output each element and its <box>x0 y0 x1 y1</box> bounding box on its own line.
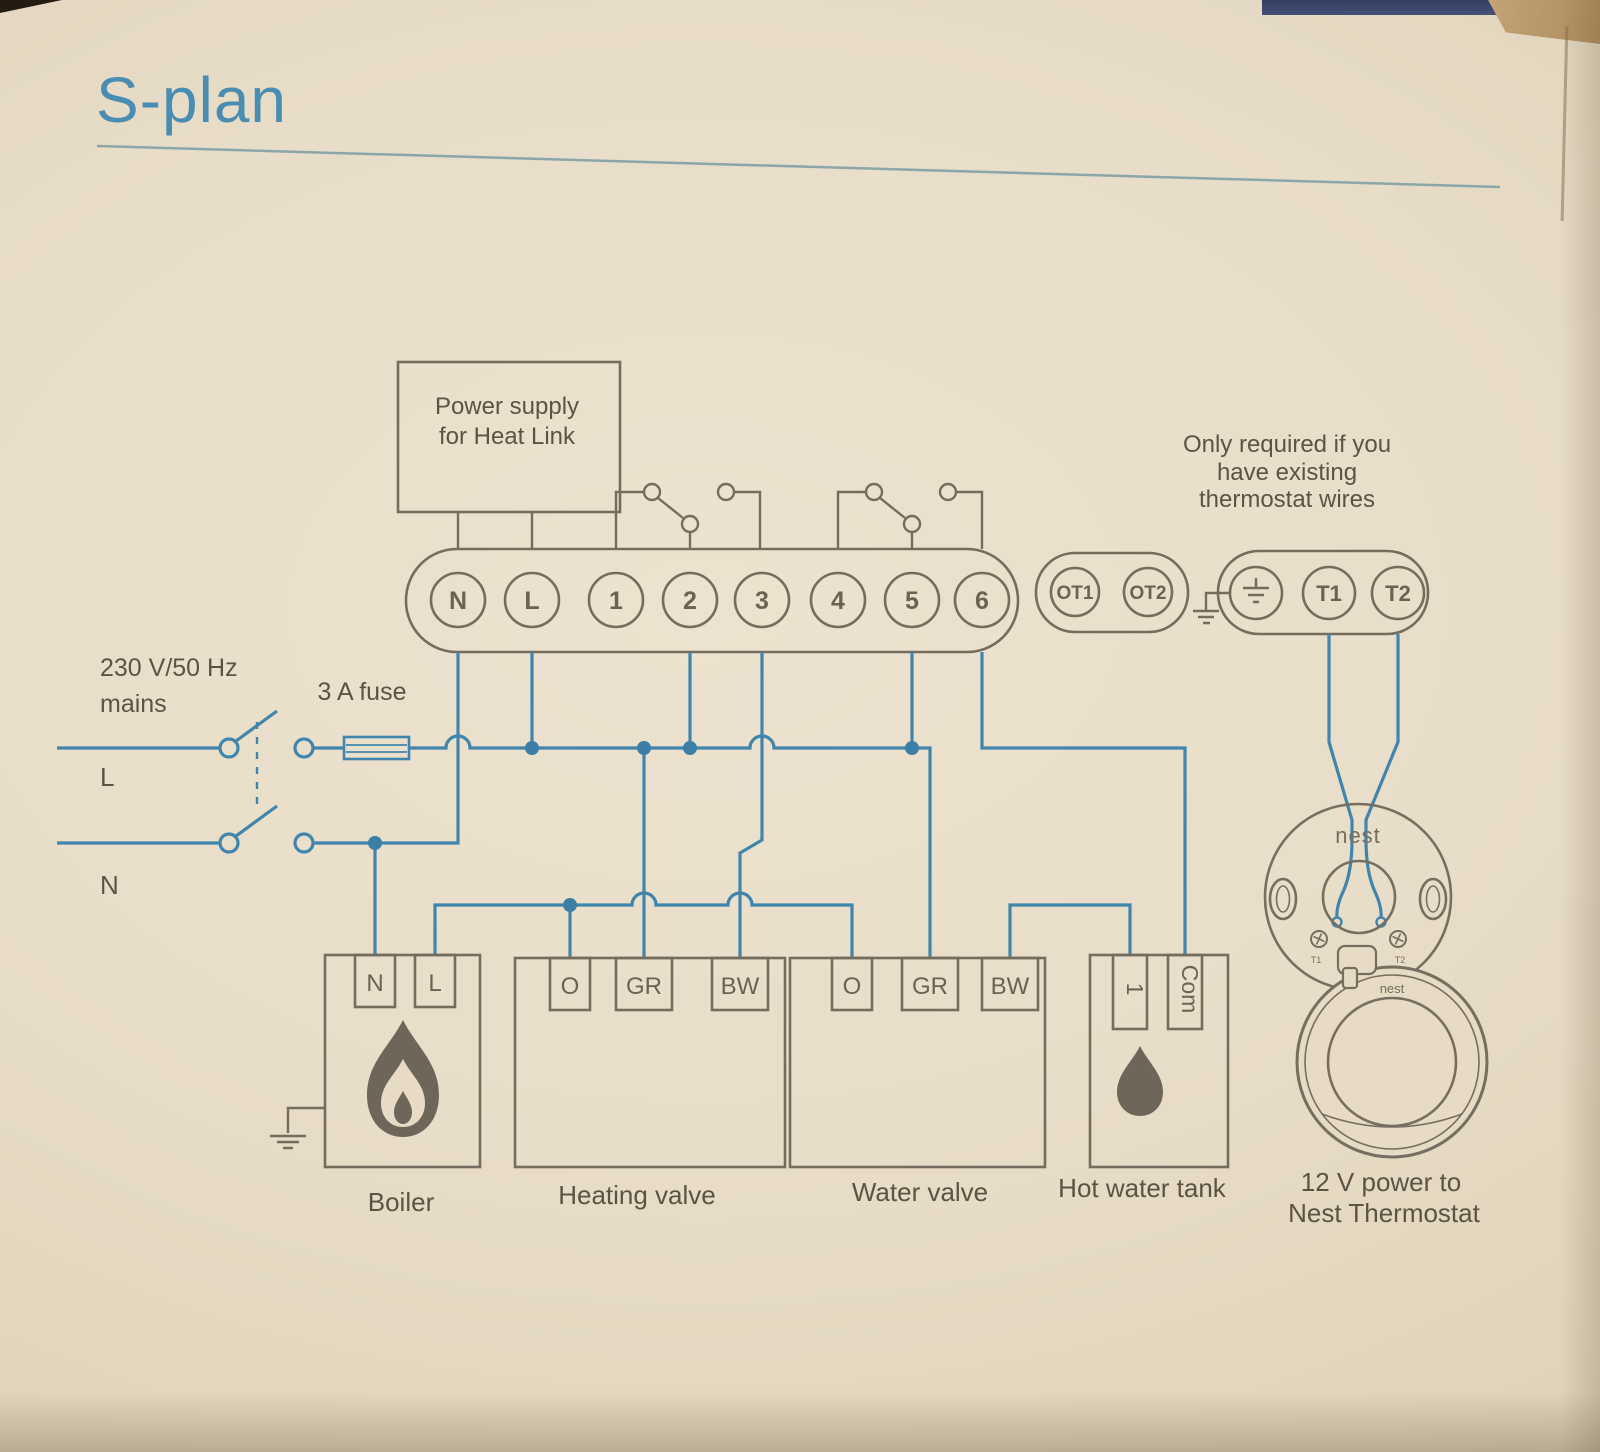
mains-neutral-label: N <box>100 870 119 900</box>
mains-double-pole-switch <box>57 711 313 852</box>
mains-live-label: L <box>100 762 114 792</box>
terminal-earth <box>1230 567 1282 619</box>
terminal-ot2-label: OT2 <box>1130 583 1167 604</box>
earth-symbol-icon <box>1193 611 1219 623</box>
switch-contact-icon <box>295 739 313 757</box>
wire-t2-to-nest <box>1366 634 1398 918</box>
water-valve-bw-label: BW <box>991 973 1030 1000</box>
heating-valve-label: Heating valve <box>558 1180 716 1210</box>
power-supply-label-line2: for Heat Link <box>439 423 576 450</box>
backplate-screw-t1-label: T1 <box>1311 955 1322 965</box>
switch-pivot-icon <box>682 516 698 532</box>
junction-dot <box>525 741 539 755</box>
junction-dot <box>368 836 382 850</box>
boiler-terminal-n-label: N <box>366 970 383 997</box>
tank-terminal-1-label: 1 <box>1122 983 1148 996</box>
junction-dot <box>683 741 697 755</box>
wire-terminal-6-to-com <box>982 652 1185 955</box>
tank-terminal-com-label: Com <box>1177 965 1203 1014</box>
terminal-5-label: 5 <box>905 587 919 615</box>
power-supply-box <box>398 362 620 549</box>
terminal-4-label: 4 <box>831 587 845 615</box>
heating-valve-bw-label: BW <box>721 973 760 1000</box>
nest-power-label-line1: 12 V power to <box>1301 1167 1461 1197</box>
heating-relay-switch <box>616 484 760 549</box>
wiring-diagram: S-plan Power supply for Heat Link <box>0 0 1600 1452</box>
hot-water-tank-box <box>1090 955 1228 1167</box>
earth-pigtail <box>1193 593 1230 623</box>
terminal-2-label: 2 <box>683 587 697 615</box>
boiler-terminal-l-label: L <box>428 970 441 997</box>
junction-dot <box>637 741 651 755</box>
fuse-label: 3 A fuse <box>318 678 407 706</box>
page-title: S-plan <box>96 64 287 136</box>
water-valve-gr-label: GR <box>912 973 948 1000</box>
flame-icon <box>367 1020 439 1137</box>
wire-terminal-3-to-bw <box>740 652 762 958</box>
heat-link-terminal-strip <box>406 549 1018 652</box>
switch-contact-icon <box>718 484 734 500</box>
terminal-3-label: 3 <box>755 587 769 615</box>
switch-contact-icon <box>866 484 882 500</box>
junction-dot <box>905 741 919 755</box>
terminal-n-label: N <box>449 587 467 615</box>
backplate-screw-slot-icon <box>1277 886 1290 912</box>
mains-label: mains <box>100 690 167 718</box>
switch-pole-icon <box>220 739 238 757</box>
nest-power-label-line2: Nest Thermostat <box>1288 1198 1480 1228</box>
backplate-wire-hole <box>1323 861 1395 933</box>
switch-blade-icon <box>658 498 683 518</box>
junction-dot <box>563 898 577 912</box>
switch-contact-icon <box>940 484 956 500</box>
backplate-screw-t2-label: T2 <box>1395 955 1406 965</box>
water-valve-label: Water valve <box>852 1177 988 1207</box>
heating-valve-gr-label: GR <box>626 973 662 1000</box>
switch-pivot-icon <box>904 516 920 532</box>
terminal-6-label: 6 <box>975 587 989 615</box>
boiler-earth-wire <box>288 1108 325 1133</box>
note-line3: thermostat wires <box>1199 486 1375 513</box>
hot-water-tank-label: Hot water tank <box>1058 1173 1227 1203</box>
terminal-t2-label: T2 <box>1385 581 1411 606</box>
wire-bw-to-tank1 <box>1010 905 1130 958</box>
terminal-l-label: L <box>524 587 539 615</box>
backplate-screw-slot-icon <box>1420 879 1446 919</box>
hot-water-relay-switch <box>838 484 982 549</box>
backplate-logo: nest <box>1335 823 1381 848</box>
switch-contact-icon <box>644 484 660 500</box>
backplate-screw-slot-icon <box>1427 886 1440 912</box>
water-valve-o-label: O <box>843 973 862 1000</box>
wire-t1-to-nest <box>1329 634 1352 918</box>
terminal-t1-label: T1 <box>1316 581 1342 606</box>
earth-symbol-icon <box>1243 578 1269 602</box>
title-underline <box>97 146 1500 187</box>
power-supply-label-line1: Power supply <box>435 393 579 420</box>
heating-valve-o-label: O <box>561 973 580 1000</box>
switch-blade-icon <box>880 498 905 518</box>
fuse-symbol <box>313 737 409 759</box>
thermostat-logo: nest <box>1380 981 1405 996</box>
mains-voltage-label: 230 V/50 Hz <box>100 654 238 682</box>
water-drop-icon <box>1117 1046 1163 1116</box>
terminal-ot1-label: OT1 <box>1057 583 1094 604</box>
terminal-1-label: 1 <box>609 587 623 615</box>
switch-pole-icon <box>220 834 238 852</box>
switch-blade-icon <box>236 806 277 836</box>
boiler-label: Boiler <box>368 1187 435 1217</box>
backplate-screw-slot-icon <box>1270 879 1296 919</box>
switch-contact-icon <box>295 834 313 852</box>
earth-symbol-icon <box>270 1136 306 1148</box>
note-line1: Only required if you <box>1183 431 1391 458</box>
note-line2: have existing <box>1217 459 1357 486</box>
